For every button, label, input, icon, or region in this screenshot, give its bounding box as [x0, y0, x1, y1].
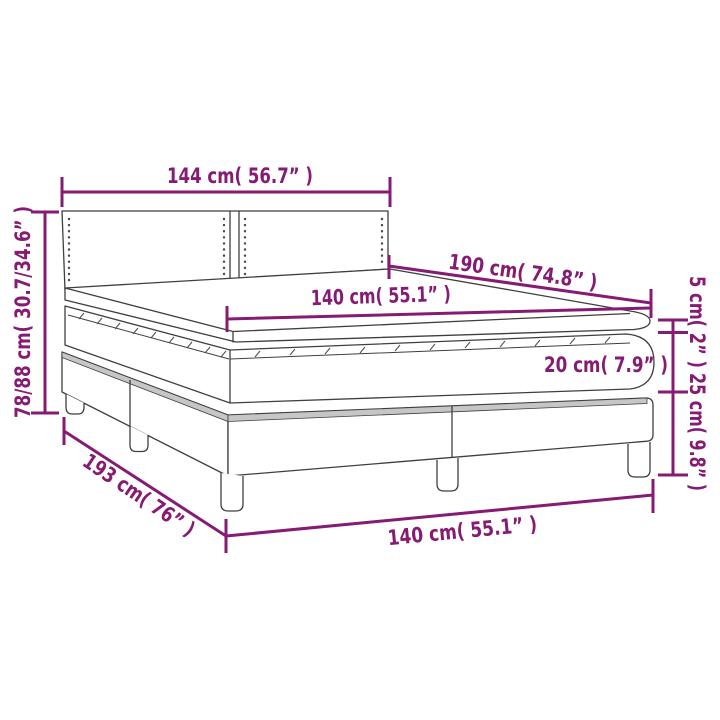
dim-headboard-width: 144 cm( 56.7” ) — [62, 164, 390, 207]
dim-base-height-label: 25 cm( 9.8” ) — [685, 373, 709, 491]
dim-base-length-label: 193 cm( 76” ) — [78, 449, 199, 542]
dim-bed-height: 78/88 cm( 30.7/34.6” ) — [11, 206, 59, 418]
dim-mattress-width-label: 140 cm( 55.1” ) — [310, 282, 451, 310]
dim-right-stack-line — [658, 320, 688, 475]
dim-mattress-thickness-label: 20 cm( 7.9” ) — [544, 353, 668, 377]
dim-headboard-width-label: 144 cm( 56.7” ) — [167, 164, 313, 188]
dim-topper-thickness-label: 5 cm( 2” ) — [685, 276, 709, 368]
dim-bed-height-label: 78/88 cm( 30.7/34.6” ) — [11, 206, 35, 418]
bed-leg — [437, 458, 458, 491]
diagram-canvas: 144 cm( 56.7” ) 78/88 cm( 30.7/34.6” ) 1… — [0, 0, 720, 720]
dim-bed-height-line — [31, 212, 59, 413]
bed-leg — [628, 442, 650, 477]
bed-dimension-diagram: 144 cm( 56.7” ) 78/88 cm( 30.7/34.6” ) 1… — [0, 0, 720, 720]
bed-leg — [221, 473, 243, 511]
